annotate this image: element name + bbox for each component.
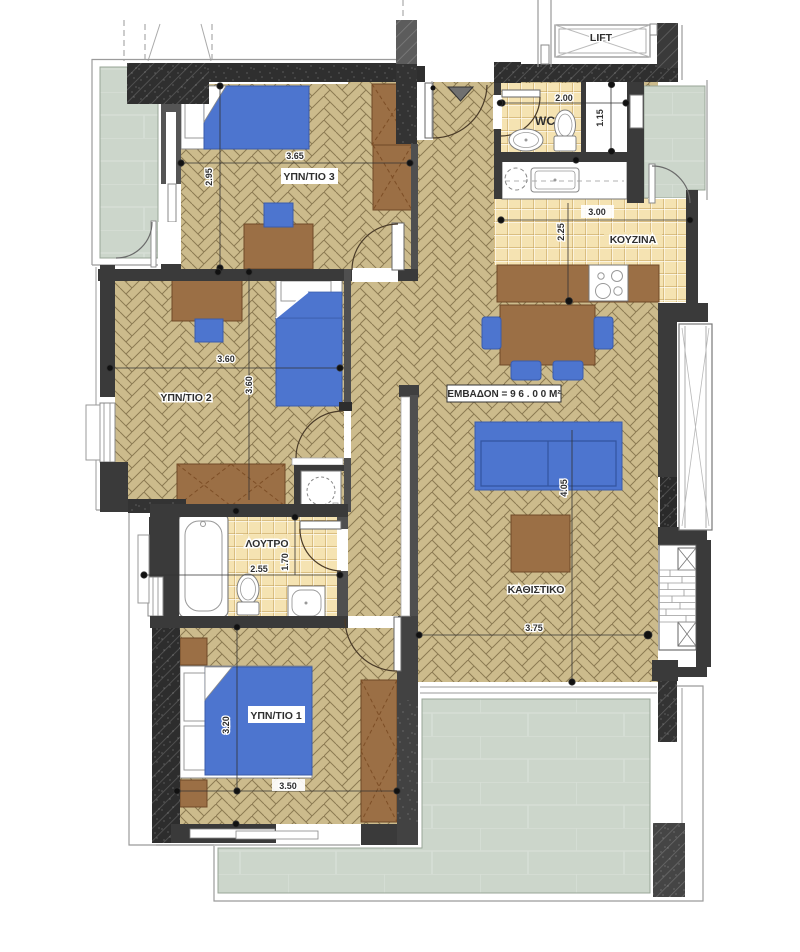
svg-text:3.50: 3.50 — [279, 781, 297, 791]
svg-text:ΛΟΥΤΡΟ: ΛΟΥΤΡΟ — [245, 538, 288, 550]
svg-text:ΚΟΥΖΙΝΑ: ΚΟΥΖΙΝΑ — [610, 234, 657, 246]
svg-text:ΥΠΝ/ΤΙΟ 1: ΥΠΝ/ΤΙΟ 1 — [250, 710, 302, 722]
svg-text:ΥΠΝ/ΤΙΟ 2: ΥΠΝ/ΤΙΟ 2 — [160, 392, 212, 404]
svg-text:3.60: 3.60 — [244, 376, 254, 394]
svg-text:2.00: 2.00 — [555, 93, 573, 103]
svg-text:3.00: 3.00 — [588, 207, 606, 217]
svg-text:ΕΜΒΑΔΟΝ = 9 6 . 0 0 Μ²: ΕΜΒΑΔΟΝ = 9 6 . 0 0 Μ² — [447, 389, 561, 400]
svg-text:1.70: 1.70 — [280, 553, 290, 571]
svg-text:3.75: 3.75 — [525, 623, 543, 633]
svg-text:1.15: 1.15 — [595, 109, 605, 127]
svg-text:2.55: 2.55 — [250, 564, 268, 574]
svg-text:ΚΑΘΙΣΤΙΚΟ: ΚΑΘΙΣΤΙΚΟ — [508, 584, 565, 596]
svg-text:2.95: 2.95 — [204, 168, 214, 186]
svg-text:2.25: 2.25 — [556, 223, 566, 241]
svg-text:4.05: 4.05 — [559, 479, 569, 497]
svg-text:LIFT: LIFT — [590, 32, 613, 44]
svg-text:3.65: 3.65 — [286, 151, 304, 161]
svg-text:3.20: 3.20 — [221, 716, 231, 734]
svg-text:3.60: 3.60 — [217, 354, 235, 364]
svg-text:WC: WC — [535, 114, 555, 128]
svg-text:ΥΠΝ/ΤΙΟ 3: ΥΠΝ/ΤΙΟ 3 — [283, 171, 335, 183]
